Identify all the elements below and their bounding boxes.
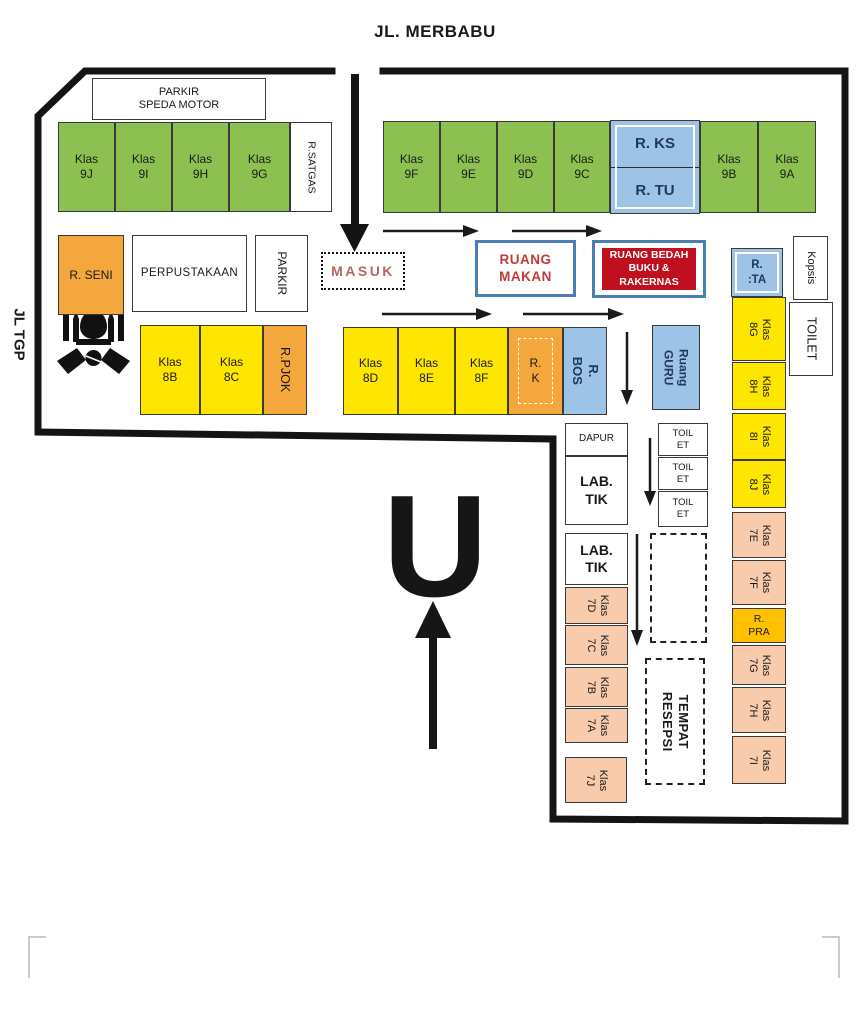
school-map: JL. MERBABU JL TGP U PARKIR SPEDA MOTOR … — [0, 0, 867, 1024]
room-r-pra: R. PRA — [732, 608, 786, 643]
room-perpustakaan: PERPUSTAKAAN — [132, 235, 247, 312]
room-klas-9d: Klas 9D — [497, 121, 554, 213]
room-kopsis: Kopsis — [793, 236, 828, 300]
room-toilet-small-3: TOIL ET — [658, 491, 708, 527]
room-r-ks-r-tu: R. KS R. TU — [610, 120, 700, 214]
room-klas-9c: Klas 9C — [554, 121, 610, 213]
room-dapur: DAPUR — [565, 423, 628, 456]
room-klas-7c: Klas 7C — [565, 625, 628, 665]
room-klas-7b: Klas 7B — [565, 667, 628, 707]
room-parkir-speda-motor: PARKIR SPEDA MOTOR — [92, 78, 266, 120]
street-name-left-label: JL TGP — [11, 308, 28, 360]
room-klas-9a: Klas 9A — [758, 121, 816, 213]
room-klas-7j: Klas 7J — [565, 757, 627, 803]
room-klas-8g: Klas 8G — [732, 297, 786, 361]
room-klas-8b: Klas 8B — [140, 325, 200, 415]
room-toilet-main: TOILET — [789, 302, 833, 376]
room-toilet-small-1: TOIL ET — [658, 423, 708, 456]
entrance-masuk: MASUK — [321, 252, 405, 290]
room-klas-8f: Klas 8F — [455, 327, 508, 415]
area-tempat-resepsi: TEMPAT RESEPSI — [645, 658, 705, 785]
room-klas-8j: Klas 8J — [732, 460, 786, 508]
room-klas-7g: Klas 7G — [732, 645, 786, 685]
room-toilet-small-2: TOIL ET — [658, 457, 708, 490]
room-klas-7d: Klas 7D — [565, 587, 628, 624]
room-klas-7i: Klas 7I — [732, 736, 786, 784]
room-parkir: PARKIR — [255, 235, 308, 312]
room-r-bos: R. BOS — [563, 327, 607, 415]
room-lab-tik-2: LAB. TIK — [565, 533, 628, 585]
room-ruang-bedah-buku: RUANG BEDAH BUKU & RAKERNAS — [592, 240, 706, 298]
room-r-pjok: R.PJOK — [263, 325, 307, 415]
room-klas-9b: Klas 9B — [700, 121, 758, 213]
compass-north-letter: U — [383, 474, 487, 632]
room-klas-9h: Klas 9H — [172, 122, 229, 212]
street-name-top: JL. MERBABU — [340, 22, 530, 42]
room-klas-9e: Klas 9E — [440, 121, 497, 213]
room-klas-7e: Klas 7E — [732, 512, 786, 558]
room-r-k: R. K — [508, 327, 563, 415]
room-r-ks-label: R. KS — [611, 121, 699, 168]
room-klas-8c: Klas 8C — [200, 325, 263, 415]
room-klas-9g: Klas 9G — [229, 122, 290, 212]
room-klas-7f: Klas 7F — [732, 560, 786, 605]
room-klas-7a: Klas 7A — [565, 708, 628, 743]
street-name-left: JL TGP — [0, 298, 44, 370]
room-ruang-guru: Ruang GURU — [652, 325, 700, 410]
room-ruang-makan: RUANG MAKAN — [475, 240, 576, 297]
room-klas-9f: Klas 9F — [383, 121, 440, 213]
room-r-satgas: R.SATGAS — [290, 122, 332, 212]
reserved-area — [650, 533, 707, 643]
room-klas-8d: Klas 8D — [343, 327, 398, 415]
room-klas-9i: Klas 9I — [115, 122, 172, 212]
entrance-down-arrow — [340, 74, 369, 252]
room-klas-8i: Klas 8I — [732, 413, 786, 460]
room-lab-tik-1: LAB. TIK — [565, 456, 628, 525]
room-r-tu-label: R. TU — [611, 168, 699, 214]
room-klas-9j: Klas 9J — [58, 122, 115, 212]
room-ruang-bedah-buku-label: RUANG BEDAH BUKU & RAKERNAS — [602, 248, 696, 290]
room-klas-8e: Klas 8E — [398, 327, 455, 415]
room-klas-7h: Klas 7H — [732, 687, 786, 733]
room-klas-8h: Klas 8H — [732, 362, 786, 410]
room-r-seni: R. SENI — [58, 235, 124, 315]
room-r-ta: R. :TA — [731, 248, 783, 297]
